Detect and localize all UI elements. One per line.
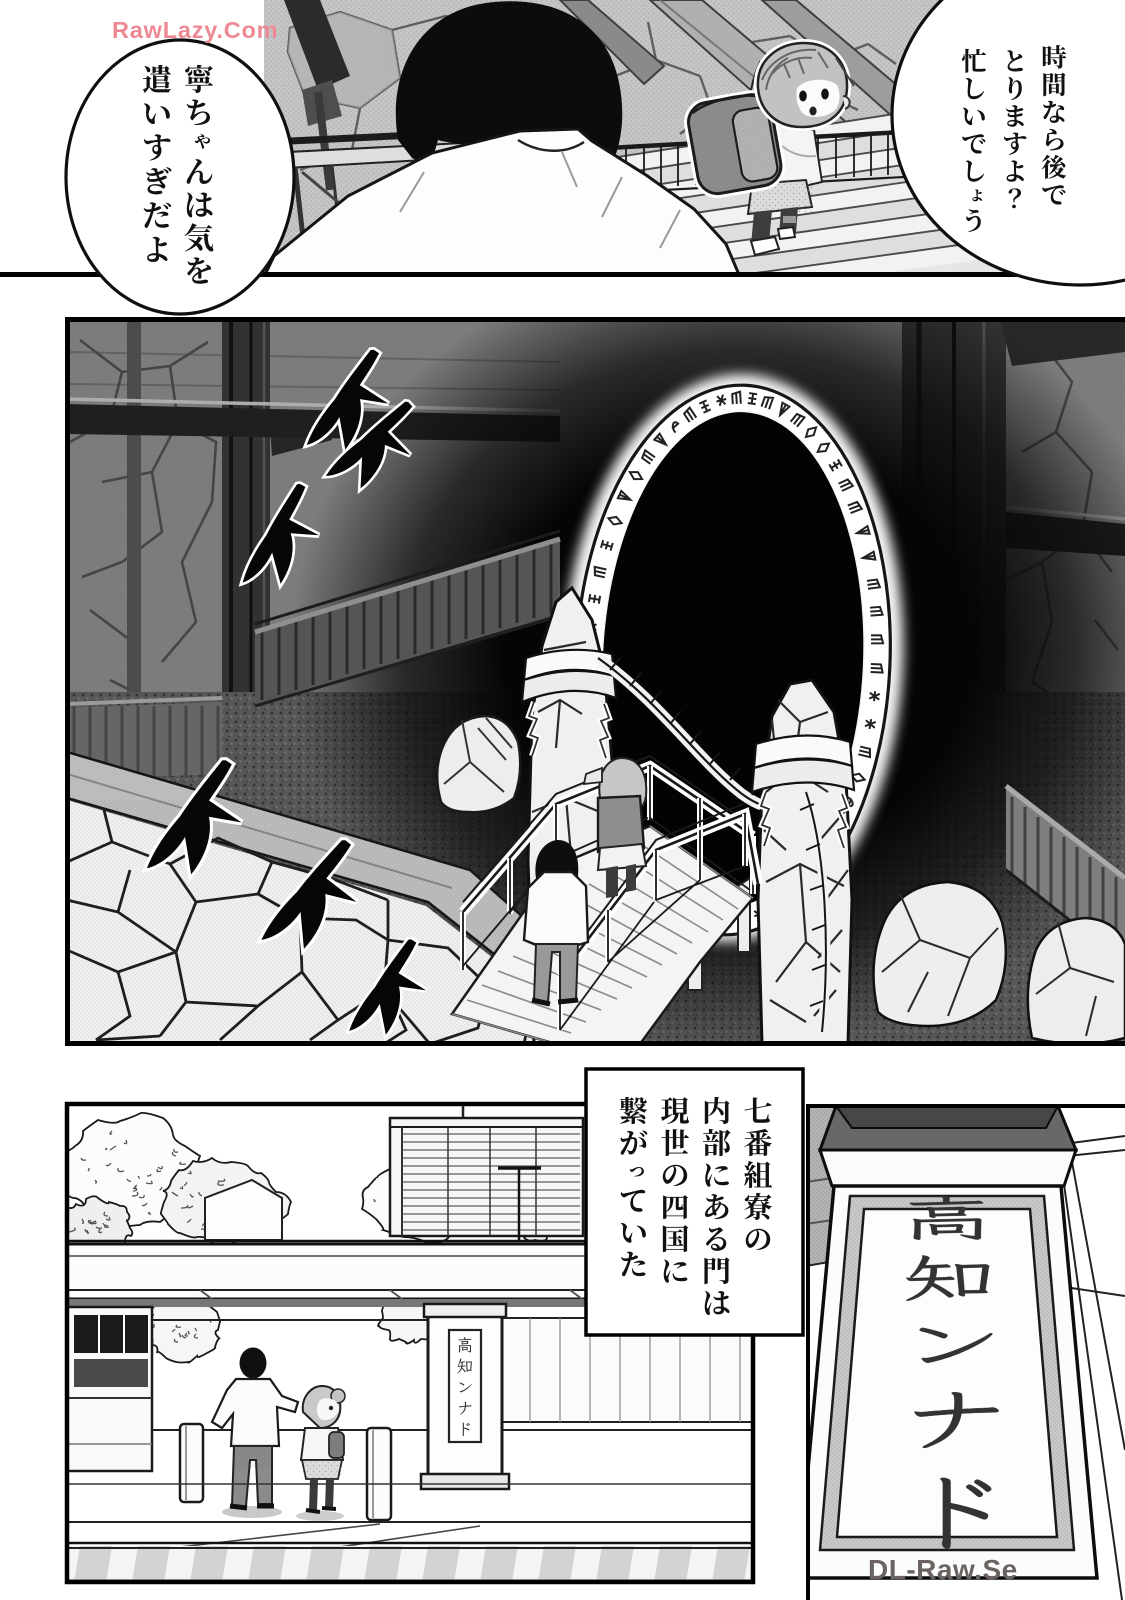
svg-text:DL-Raw.Se: DL-Raw.Se — [868, 1554, 1018, 1585]
svg-text:RawLazy.Com: RawLazy.Com — [112, 17, 278, 43]
